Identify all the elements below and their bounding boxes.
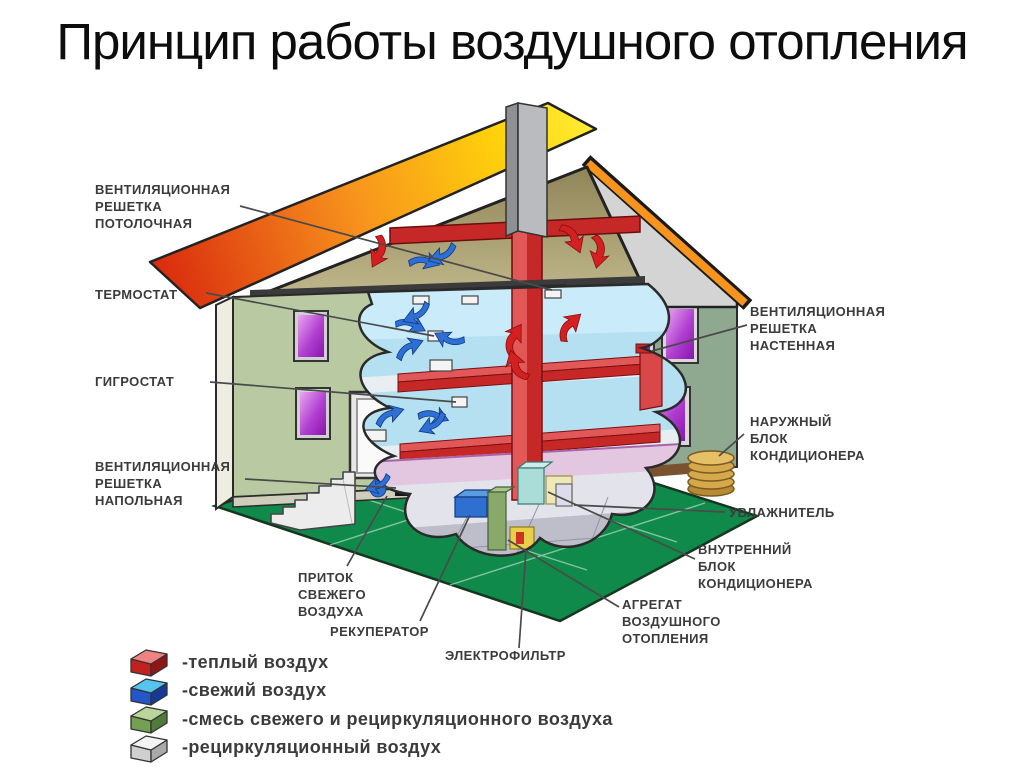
- legend-item-warm-air: -теплый воздух: [128, 648, 613, 677]
- legend-label-mixed-air: -смесь свежего и рециркуляционного возду…: [182, 709, 613, 730]
- callout-fresh-air-intake: ПРИТОК СВЕЖЕГО ВОЗДУХА: [298, 570, 366, 621]
- mixed-air-cube-icon: [128, 704, 170, 734]
- callout-thermostat: ТЕРМОСТАТ: [95, 287, 178, 304]
- electrofilter-box: [510, 527, 534, 549]
- legend-item-mixed-air: -смесь свежего и рециркуляционного возду…: [128, 705, 613, 734]
- legend-label-warm-air: -теплый воздух: [182, 652, 329, 673]
- page-title: Принцип работы воздушного отопления: [0, 12, 1024, 71]
- fresh-air-cube-icon: [128, 676, 170, 706]
- legend-label-fresh-air: -свежий воздух: [182, 680, 327, 701]
- legend-item-recirculated-air: -рециркуляционный воздух: [128, 734, 613, 763]
- outdoor-ac-unit-stack: [688, 451, 734, 496]
- floor-unit: [430, 360, 452, 371]
- callout-air-heating-unit: АГРЕГАТ ВОЗДУШНОГО ОТОПЛЕНИЯ: [622, 597, 721, 648]
- ceiling-vent-grille: [545, 290, 561, 298]
- ceiling-vent-grille: [462, 296, 478, 304]
- callout-vent-grille-ceiling: ВЕНТИЛЯЦИОННАЯ РЕШЕТКА ПОТОЛОЧНАЯ: [95, 182, 230, 233]
- callout-vent-grille-floor: ВЕНТИЛЯЦИОННАЯ РЕШЕТКА НАПОЛЬНАЯ: [95, 459, 230, 510]
- legend-label-recirculated-air: -рециркуляционный воздух: [182, 737, 441, 758]
- callout-indoor-ac-unit: ВНУТРЕННИЙ БЛОК КОНДИЦИОНЕРА: [698, 542, 813, 593]
- warm-air-cube-icon: [128, 647, 170, 677]
- chimney: [506, 103, 547, 237]
- legend-item-fresh-air: -свежий воздух: [128, 677, 613, 706]
- callout-humidifier: УВЛАЖНИТЕЛЬ: [729, 505, 835, 522]
- callout-vent-grille-wall: ВЕНТИЛЯЦИОННАЯ РЕШЕТКА НАСТЕННАЯ: [750, 304, 885, 355]
- legend: -теплый воздух -свежий воздух -смесь: [128, 648, 613, 762]
- recirculated-air-cube-icon: [128, 733, 170, 763]
- callout-recuperator: РЕКУПЕРАТОР: [330, 624, 429, 641]
- callout-hygrostat: ГИГРОСТАТ: [95, 374, 174, 391]
- slide: Принцип работы воздушного отопления ВЕНТ…: [0, 0, 1024, 767]
- callout-outdoor-ac-unit: НАРУЖНЫЙ БЛОК КОНДИЦИОНЕРА: [750, 414, 865, 465]
